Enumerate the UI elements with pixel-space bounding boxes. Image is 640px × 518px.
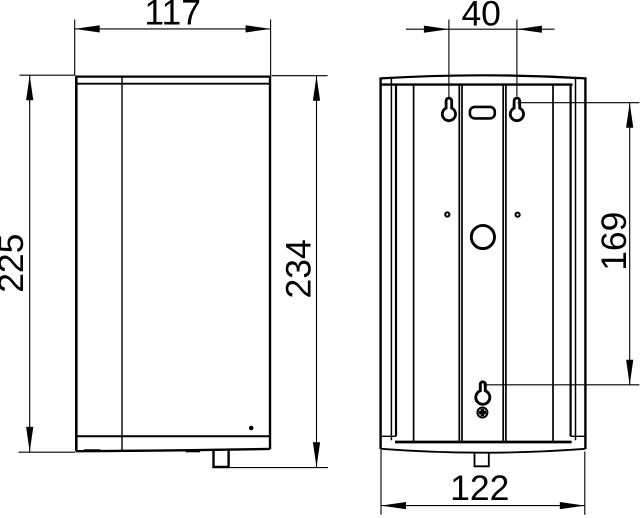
svg-text:117: 117 [144,0,201,33]
svg-text:40: 40 [461,0,501,33]
svg-text:234: 234 [279,239,319,298]
svg-text:169: 169 [594,212,634,271]
svg-text:122: 122 [450,468,509,508]
svg-text:225: 225 [0,234,31,293]
